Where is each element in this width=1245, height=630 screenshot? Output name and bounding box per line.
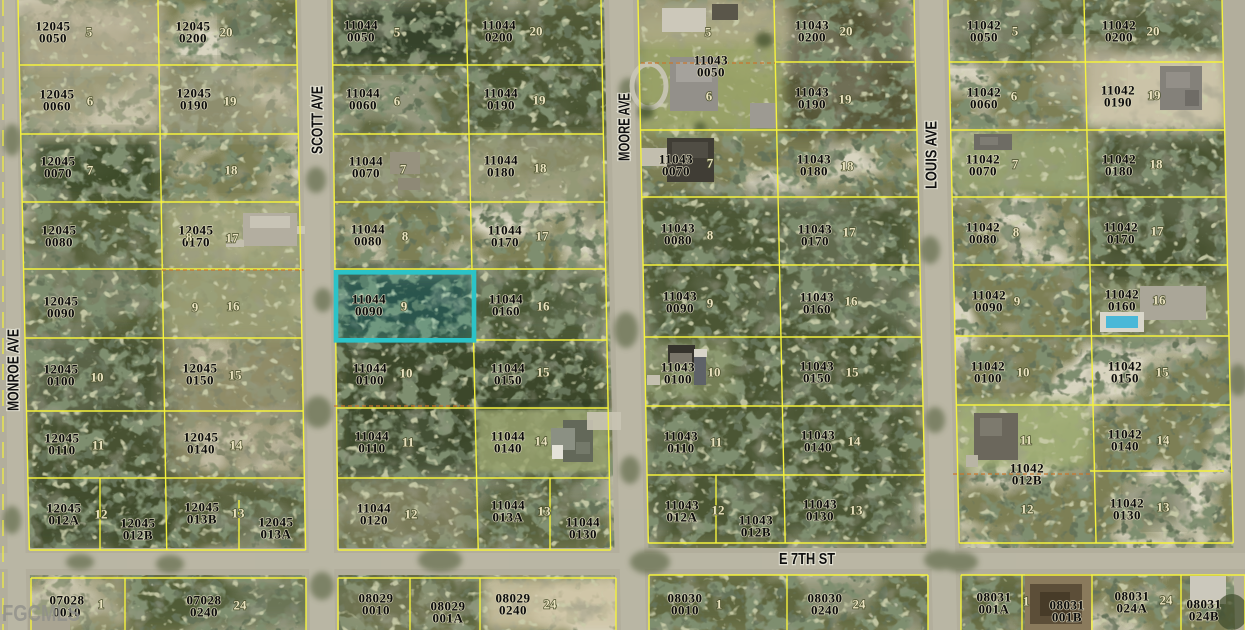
svg-text:13: 13 (538, 504, 552, 519)
svg-text:6: 6 (1011, 89, 1018, 104)
svg-text:17: 17 (536, 229, 550, 244)
svg-text:6: 6 (87, 94, 94, 109)
svg-text:11044013A: 11044013A (491, 498, 525, 525)
svg-text:08031024A: 08031024A (1115, 589, 1150, 616)
svg-text:10: 10 (1017, 365, 1030, 380)
svg-text:110430160: 110430160 (800, 290, 834, 317)
svg-text:14: 14 (848, 434, 862, 449)
svg-text:110430110: 110430110 (664, 429, 698, 456)
svg-text:110440200: 110440200 (482, 18, 516, 45)
svg-text:FGCMLS: FGCMLS (2, 600, 80, 626)
svg-text:11: 11 (1020, 433, 1032, 448)
svg-text:SCOTT AVE: SCOTT AVE (310, 86, 327, 154)
svg-text:1: 1 (1023, 594, 1030, 609)
svg-text:24: 24 (1160, 593, 1174, 608)
svg-text:110430200: 110430200 (795, 18, 829, 45)
svg-text:20: 20 (220, 25, 233, 40)
svg-text:LOUIS AVE: LOUIS AVE (924, 121, 941, 189)
svg-text:16: 16 (1153, 293, 1167, 308)
svg-text:110440100: 110440100 (353, 361, 387, 388)
svg-text:MONROE AVE: MONROE AVE (6, 329, 23, 411)
svg-text:9: 9 (401, 299, 408, 314)
svg-text:15: 15 (537, 365, 551, 380)
svg-text:19: 19 (1148, 88, 1162, 103)
svg-text:110430170: 110430170 (798, 222, 832, 249)
svg-text:110420150: 110420150 (1108, 359, 1142, 386)
svg-text:8: 8 (707, 228, 714, 243)
svg-text:110440070: 110440070 (349, 154, 383, 181)
svg-text:110440180: 110440180 (484, 153, 518, 180)
svg-text:120450150: 120450150 (183, 361, 218, 388)
svg-text:110430100: 110430100 (661, 360, 695, 387)
svg-text:110440150: 110440150 (491, 361, 525, 388)
svg-text:110440140: 110440140 (491, 429, 525, 456)
svg-text:110440130: 110440130 (566, 515, 600, 542)
svg-text:10: 10 (91, 370, 104, 385)
svg-text:7: 7 (87, 163, 94, 178)
svg-text:110420170: 110420170 (1104, 220, 1138, 247)
svg-text:8: 8 (186, 230, 193, 245)
svg-text:6: 6 (394, 94, 401, 109)
svg-text:18: 18 (1150, 157, 1164, 172)
svg-text:110430140: 110430140 (801, 428, 835, 455)
svg-text:14: 14 (535, 434, 549, 449)
svg-text:110430070: 110430070 (659, 152, 693, 179)
svg-text:1: 1 (716, 597, 723, 612)
svg-text:120450070: 120450070 (41, 154, 76, 181)
svg-text:17: 17 (1151, 224, 1165, 239)
svg-text:16: 16 (227, 299, 241, 314)
svg-text:110440190: 110440190 (484, 86, 518, 113)
svg-text:08029001A: 08029001A (431, 599, 466, 626)
svg-text:12045012A: 12045012A (47, 501, 82, 528)
svg-text:11: 11 (92, 438, 104, 453)
svg-text:19: 19 (224, 94, 238, 109)
svg-text:110420100: 110420100 (971, 359, 1005, 386)
svg-text:11043012B: 11043012B (739, 513, 773, 540)
svg-text:16: 16 (537, 299, 551, 314)
svg-text:110420060: 110420060 (967, 85, 1001, 112)
svg-text:080290010: 080290010 (359, 591, 394, 618)
svg-text:110440170: 110440170 (488, 223, 522, 250)
svg-text:15: 15 (846, 365, 860, 380)
svg-text:08031001A: 08031001A (977, 590, 1012, 617)
svg-text:12: 12 (95, 507, 108, 522)
svg-text:13: 13 (850, 503, 864, 518)
svg-text:11: 11 (710, 435, 722, 450)
svg-text:15: 15 (229, 368, 243, 383)
svg-text:5: 5 (86, 25, 93, 40)
svg-text:110440120: 110440120 (357, 501, 391, 528)
svg-text:110430150: 110430150 (800, 359, 834, 386)
svg-text:16: 16 (845, 294, 859, 309)
svg-text:08031024B: 08031024B (1187, 597, 1222, 624)
svg-text:110440110: 110440110 (355, 429, 389, 456)
svg-text:15: 15 (1156, 365, 1170, 380)
svg-text:19: 19 (839, 92, 853, 107)
svg-text:110430190: 110430190 (795, 85, 829, 112)
svg-text:120450170: 120450170 (179, 223, 214, 250)
svg-text:110420180: 110420180 (1102, 152, 1136, 179)
svg-text:11042012B: 11042012B (1010, 461, 1044, 488)
svg-text:12: 12 (405, 507, 418, 522)
svg-text:5: 5 (394, 25, 401, 40)
svg-text:110430180: 110430180 (797, 152, 831, 179)
svg-text:24: 24 (853, 597, 867, 612)
svg-text:9: 9 (707, 296, 714, 311)
svg-text:8: 8 (402, 229, 409, 244)
svg-text:110420090: 110420090 (972, 288, 1006, 315)
svg-text:18: 18 (841, 159, 855, 174)
svg-text:110440080: 110440080 (351, 222, 385, 249)
svg-text:110420070: 110420070 (966, 152, 1000, 179)
svg-text:10: 10 (400, 366, 413, 381)
svg-text:110440050: 110440050 (344, 18, 378, 45)
svg-text:20: 20 (1147, 24, 1160, 39)
svg-text:24: 24 (544, 597, 558, 612)
svg-text:9: 9 (1014, 294, 1021, 309)
svg-text:110420190: 110420190 (1101, 83, 1135, 110)
svg-text:110440090: 110440090 (352, 292, 386, 319)
svg-text:9: 9 (192, 300, 199, 315)
svg-text:120450200: 120450200 (176, 19, 211, 46)
svg-text:E 7TH ST: E 7TH ST (779, 551, 835, 568)
svg-text:110420200: 110420200 (1102, 18, 1136, 45)
svg-text:14: 14 (230, 438, 244, 453)
svg-text:110430090: 110430090 (663, 289, 697, 316)
svg-text:110440060: 110440060 (346, 86, 380, 113)
svg-text:5: 5 (1012, 24, 1019, 39)
svg-text:13: 13 (1157, 500, 1171, 515)
svg-text:14: 14 (1157, 433, 1171, 448)
svg-text:070280240: 070280240 (187, 593, 222, 620)
svg-text:5: 5 (705, 25, 712, 40)
svg-text:08031001B: 08031001B (1050, 598, 1085, 625)
svg-text:120450140: 120450140 (184, 430, 219, 457)
svg-text:080300010: 080300010 (668, 591, 703, 618)
svg-text:19: 19 (533, 93, 547, 108)
svg-text:080290240: 080290240 (496, 591, 531, 618)
svg-text:24: 24 (234, 598, 248, 613)
svg-text:18: 18 (534, 161, 548, 176)
svg-text:110420050: 110420050 (967, 18, 1001, 45)
svg-text:120450190: 120450190 (177, 86, 212, 113)
svg-text:8: 8 (1013, 225, 1020, 240)
svg-text:080300240: 080300240 (808, 591, 843, 618)
svg-text:12045013A: 12045013A (259, 515, 294, 542)
svg-text:110420080: 110420080 (966, 220, 1000, 247)
svg-text:110420160: 110420160 (1105, 287, 1139, 314)
svg-text:7: 7 (400, 162, 407, 177)
svg-text:7: 7 (707, 156, 714, 171)
svg-text:13: 13 (232, 506, 246, 521)
svg-text:17: 17 (843, 225, 857, 240)
svg-text:110420140: 110420140 (1108, 427, 1142, 454)
svg-text:12: 12 (712, 503, 725, 518)
svg-text:1: 1 (98, 597, 105, 612)
svg-text:110440160: 110440160 (489, 292, 523, 319)
svg-text:20: 20 (840, 24, 853, 39)
svg-text:7: 7 (1012, 157, 1019, 172)
svg-text:110430080: 110430080 (661, 221, 695, 248)
svg-text:120450100: 120450100 (44, 362, 79, 389)
svg-text:120450060: 120450060 (40, 87, 75, 114)
svg-text:11: 11 (402, 435, 414, 450)
svg-text:12045012B: 12045012B (121, 516, 156, 543)
svg-text:6: 6 (706, 89, 713, 104)
svg-text:MOORE AVE: MOORE AVE (617, 93, 634, 161)
svg-text:12045013B: 12045013B (185, 500, 220, 527)
svg-text:110430050: 110430050 (694, 53, 728, 80)
svg-text:110420130: 110420130 (1110, 496, 1144, 523)
svg-text:120450090: 120450090 (44, 294, 79, 321)
svg-text:10: 10 (708, 365, 721, 380)
svg-text:120450110: 120450110 (45, 431, 80, 458)
svg-text:17: 17 (226, 231, 240, 246)
svg-text:18: 18 (225, 163, 239, 178)
svg-text:120450050: 120450050 (36, 19, 71, 46)
svg-text:12: 12 (1021, 502, 1034, 517)
svg-text:120450080: 120450080 (42, 223, 77, 250)
svg-text:110430130: 110430130 (803, 497, 837, 524)
svg-text:11043012A: 11043012A (665, 498, 699, 525)
svg-text:20: 20 (530, 24, 543, 39)
